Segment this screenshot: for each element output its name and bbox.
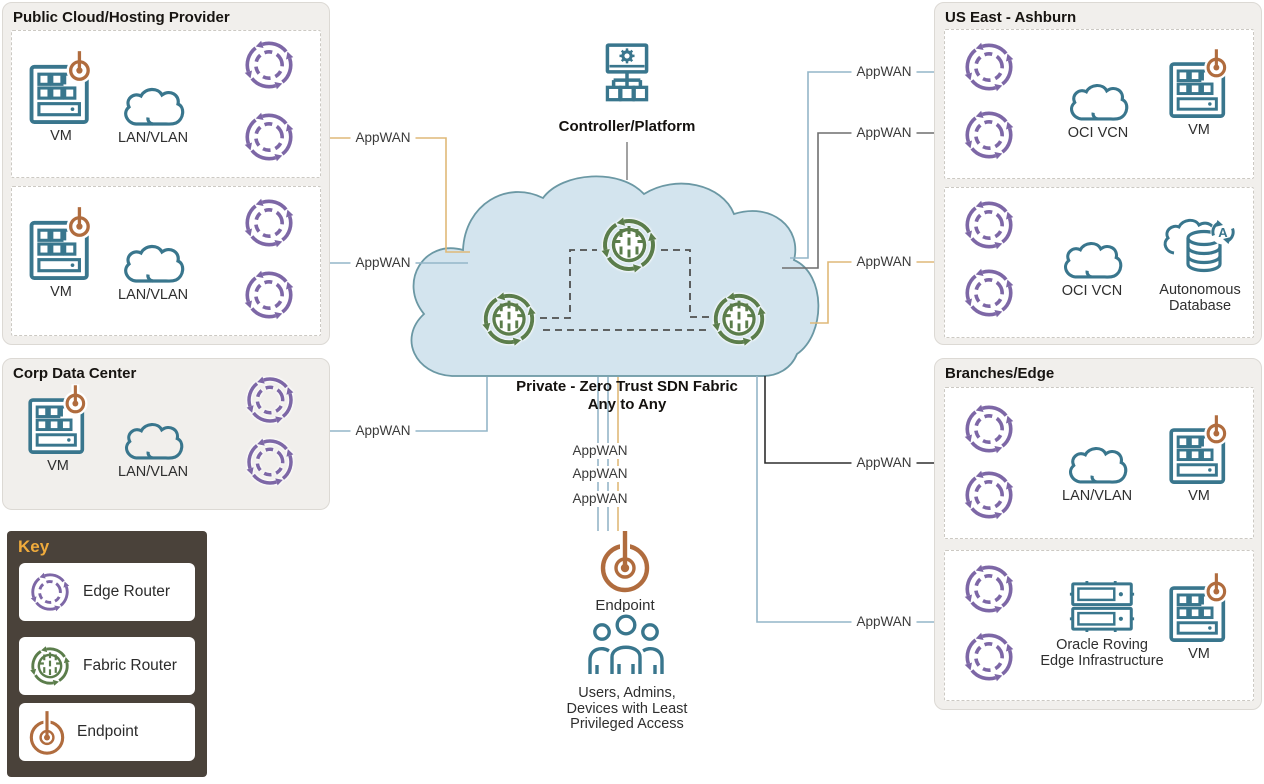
edge-router-icon xyxy=(240,266,298,324)
lan-vlan-label: LAN/VLAN xyxy=(118,131,188,147)
oci-vcn-node: OCI VCN xyxy=(1066,82,1130,142)
lan-vlan-node: LAN/VLAN xyxy=(118,243,188,304)
network-diagram: A Public Cloud/Hosting Provider xyxy=(0,0,1264,784)
appwan-label: AppWAN xyxy=(350,423,415,439)
vm-icon xyxy=(1166,414,1232,486)
oci-vcn-label: OCI VCN xyxy=(1060,284,1124,300)
appwan-label: AppWAN xyxy=(350,255,415,271)
edge-router-node xyxy=(240,266,298,324)
endpoint-node xyxy=(597,528,653,594)
key-title: Key xyxy=(18,537,49,557)
key-legend: Key Edge Router Fabric Router Endpoint xyxy=(7,531,207,777)
edge-router-node xyxy=(960,466,1018,524)
oci-vcn-icon xyxy=(1066,82,1130,123)
corp-dc-title: Corp Data Center xyxy=(13,365,136,382)
lan-vlan-icon xyxy=(120,86,186,128)
appwan-label: AppWAN xyxy=(851,455,916,471)
vm-icon xyxy=(26,206,96,282)
vm-node: VM xyxy=(26,50,96,145)
edge-router-node xyxy=(242,434,298,490)
appwan-line-blue-right-top xyxy=(790,72,934,258)
fabric-mesh-line-left xyxy=(540,250,597,318)
edge-router-node xyxy=(960,264,1018,322)
branches-title: Branches/Edge xyxy=(945,365,1054,382)
edge-router-icon xyxy=(960,264,1018,322)
lan-vlan-icon xyxy=(1065,445,1129,486)
vm-icon xyxy=(1166,48,1232,120)
vm-label: VM xyxy=(1166,123,1232,139)
appwan-label: AppWAN xyxy=(851,64,916,80)
lan-vlan-node: LAN/VLAN xyxy=(1062,445,1132,505)
autonomous-database-icon xyxy=(1160,212,1240,280)
vm-node: VM xyxy=(1166,572,1232,663)
edge-router-icon xyxy=(960,400,1018,458)
vm-node: VM xyxy=(25,384,91,475)
fabric-router-node xyxy=(708,288,770,350)
vm-label: VM xyxy=(26,129,96,145)
vm-icon xyxy=(1166,572,1232,644)
roving-edge-label: Oracle Roving Edge Infrastructure xyxy=(1038,638,1166,669)
appwan-label: AppWAN xyxy=(851,254,916,270)
edge-router-node xyxy=(960,196,1018,254)
autonomous-database-label-line2: Database xyxy=(1169,298,1231,314)
key-item-label: Endpoint xyxy=(77,723,138,741)
lan-vlan-icon xyxy=(120,243,186,285)
lan-vlan-node: LAN/VLAN xyxy=(118,421,188,481)
fabric-router-node xyxy=(597,213,661,277)
roving-edge-icon xyxy=(1068,578,1136,635)
vm-label: VM xyxy=(26,285,96,301)
lan-vlan-icon xyxy=(121,421,185,462)
users-caption-line1: Users, Admins, xyxy=(578,685,676,701)
users-icon xyxy=(586,612,666,676)
edge-router-node xyxy=(960,106,1018,164)
oci-vcn-label: OCI VCN xyxy=(1066,126,1130,142)
fabric-router-node xyxy=(478,288,540,350)
fabric-router-icon xyxy=(27,643,73,689)
edge-router-icon xyxy=(27,569,73,615)
edge-router-node xyxy=(960,400,1018,458)
key-item-label: Fabric Router xyxy=(83,657,177,675)
vm-node: VM xyxy=(26,206,96,301)
roving-edge-label-line1: Oracle Roving xyxy=(1056,637,1148,653)
roving-edge-label-line2: Edge Infrastructure xyxy=(1040,653,1163,669)
public-cloud-title: Public Cloud/Hosting Provider xyxy=(13,9,230,26)
endpoint-icon xyxy=(27,709,67,756)
vm-label: VM xyxy=(25,459,91,475)
edge-router-node xyxy=(240,194,298,252)
edge-router-icon xyxy=(960,560,1018,618)
edge-router-node xyxy=(960,628,1018,686)
vm-label: VM xyxy=(1166,489,1232,505)
edge-router-icon xyxy=(242,434,298,490)
appwan-line-gold-right xyxy=(810,262,934,323)
appwan-line-gray-right xyxy=(782,133,934,268)
edge-router-icon xyxy=(240,108,298,166)
lan-vlan-label: LAN/VLAN xyxy=(118,288,188,304)
edge-router-node xyxy=(960,38,1018,96)
users-caption: Users, Admins, Devices with Least Privil… xyxy=(544,686,710,733)
appwan-label: AppWAN xyxy=(851,125,916,141)
fabric-mesh-line-right xyxy=(661,250,709,317)
sdn-fabric-caption-line1: Private - Zero Trust SDN Fabric xyxy=(516,378,738,395)
appwan-label: AppWAN xyxy=(567,443,632,459)
key-item-endpoint: Endpoint xyxy=(19,703,195,761)
vm-icon xyxy=(25,384,91,456)
fabric-router-icon xyxy=(478,288,540,350)
autonomous-database-label: Autonomous Database xyxy=(1152,283,1248,314)
edge-router-node xyxy=(240,108,298,166)
key-item-edge-router: Edge Router xyxy=(19,563,195,621)
edge-router-icon xyxy=(960,38,1018,96)
fabric-router-icon xyxy=(708,288,770,350)
users-caption-line3: Privileged Access xyxy=(570,716,684,732)
vm-node: VM xyxy=(1166,48,1232,139)
edge-router-icon xyxy=(960,628,1018,686)
edge-router-icon xyxy=(960,466,1018,524)
vm-node: VM xyxy=(1166,414,1232,505)
roving-edge-node: Oracle Roving Edge Infrastructure xyxy=(1038,578,1166,669)
sdn-fabric-caption-line2: Any to Any xyxy=(588,396,667,413)
edge-router-icon xyxy=(960,196,1018,254)
lan-vlan-label: LAN/VLAN xyxy=(118,465,188,481)
edge-router-node xyxy=(960,560,1018,618)
appwan-line-gold-left xyxy=(330,138,470,252)
lan-vlan-node: LAN/VLAN xyxy=(118,86,188,147)
oci-vcn-icon xyxy=(1060,240,1124,281)
oci-vcn-node: OCI VCN xyxy=(1060,240,1124,300)
autonomous-database-node: Autonomous Database xyxy=(1152,212,1248,314)
controller-label: Controller/Platform xyxy=(542,118,712,135)
appwan-line-dark-right xyxy=(765,376,934,463)
edge-router-icon xyxy=(240,36,298,94)
sdn-fabric-caption: Private - Zero Trust SDN Fabric Any to A… xyxy=(467,378,787,414)
autonomous-database-label-line1: Autonomous xyxy=(1159,282,1240,298)
us-east-title: US East - Ashburn xyxy=(945,9,1076,26)
appwan-label: AppWAN xyxy=(350,130,415,146)
controller-node: Controller/Platform xyxy=(542,42,712,135)
edge-router-icon xyxy=(240,194,298,252)
lan-vlan-label: LAN/VLAN xyxy=(1062,489,1132,505)
edge-router-node xyxy=(242,372,298,428)
key-item-label: Edge Router xyxy=(83,583,170,601)
users-node xyxy=(586,612,666,676)
fabric-router-icon xyxy=(597,213,661,277)
edge-router-icon xyxy=(960,106,1018,164)
users-caption-line2: Devices with Least xyxy=(567,701,688,717)
edge-router-node xyxy=(240,36,298,94)
key-item-fabric-router: Fabric Router xyxy=(19,637,195,695)
edge-router-icon xyxy=(242,372,298,428)
endpoint-icon xyxy=(597,528,653,594)
vm-label: VM xyxy=(1166,647,1232,663)
vm-icon xyxy=(26,50,96,126)
appwan-label: AppWAN xyxy=(567,491,632,507)
controller-icon xyxy=(596,42,658,110)
appwan-label: AppWAN xyxy=(851,614,916,630)
appwan-label: AppWAN xyxy=(567,466,632,482)
